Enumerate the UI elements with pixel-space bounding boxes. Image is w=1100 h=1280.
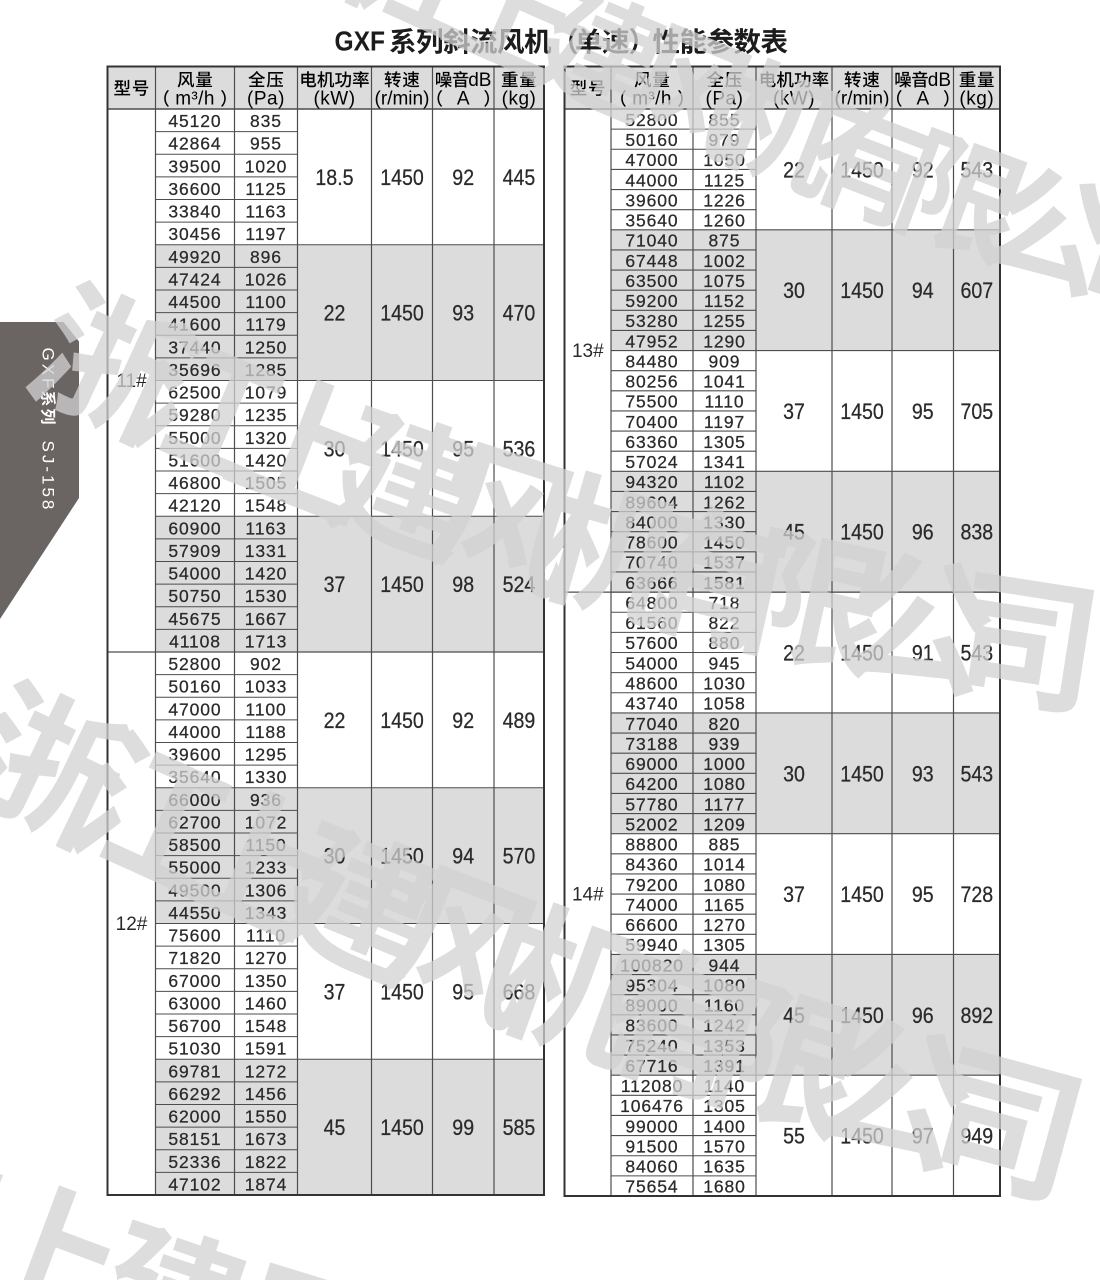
svg-text:955: 955 <box>250 134 282 154</box>
svg-text:1450: 1450 <box>840 520 884 545</box>
svg-text:1550: 1550 <box>245 1107 288 1127</box>
svg-text:98: 98 <box>452 572 474 597</box>
svg-text:44500: 44500 <box>168 292 221 312</box>
svg-text:1305: 1305 <box>703 935 746 955</box>
svg-text:92: 92 <box>452 708 474 733</box>
svg-text:(kW): (kW) <box>313 89 355 110</box>
svg-text:939: 939 <box>709 734 741 754</box>
svg-text:1235: 1235 <box>245 405 288 425</box>
svg-text:(r/min): (r/min) <box>375 89 430 110</box>
svg-text:607: 607 <box>960 278 993 303</box>
svg-text:1673: 1673 <box>245 1129 288 1149</box>
svg-text:96: 96 <box>912 1003 934 1028</box>
svg-text:1320: 1320 <box>245 428 288 448</box>
svg-text:489: 489 <box>503 708 536 733</box>
svg-text:892: 892 <box>960 1003 993 1028</box>
svg-text:58151: 58151 <box>168 1129 221 1149</box>
svg-text:1591: 1591 <box>245 1039 288 1059</box>
svg-text:44000: 44000 <box>168 722 221 742</box>
svg-text:1874: 1874 <box>245 1175 288 1195</box>
svg-text:1548: 1548 <box>245 1016 288 1036</box>
svg-text:1450: 1450 <box>840 761 884 786</box>
svg-text:45675: 45675 <box>168 609 221 629</box>
svg-text:33840: 33840 <box>168 202 221 222</box>
svg-text:902: 902 <box>250 654 282 674</box>
svg-text:1100: 1100 <box>245 292 286 312</box>
svg-text:1270: 1270 <box>245 948 288 968</box>
svg-text:57780: 57780 <box>625 794 678 814</box>
svg-text:64200: 64200 <box>625 774 678 794</box>
svg-text:944: 944 <box>709 955 741 975</box>
svg-text:A: A <box>916 89 929 110</box>
svg-text:52800: 52800 <box>168 654 221 674</box>
svg-text:1125: 1125 <box>704 170 745 190</box>
svg-text:1330: 1330 <box>245 767 288 787</box>
svg-text:37: 37 <box>324 979 346 1004</box>
svg-text:79200: 79200 <box>625 875 678 895</box>
svg-text:93: 93 <box>452 301 474 326</box>
svg-text:1305: 1305 <box>703 432 746 452</box>
svg-text:1400: 1400 <box>703 1116 746 1136</box>
svg-text:(kg): (kg) <box>959 89 994 110</box>
svg-text:1152: 1152 <box>704 291 745 311</box>
svg-text:1000: 1000 <box>703 754 746 774</box>
svg-text:74000: 74000 <box>625 895 678 915</box>
svg-text:48600: 48600 <box>625 674 678 694</box>
svg-text:99000: 99000 <box>625 1116 678 1136</box>
svg-text:1026: 1026 <box>245 270 288 290</box>
svg-text:(kg): (kg) <box>502 89 537 110</box>
svg-text:1255: 1255 <box>703 311 746 331</box>
svg-text:1163: 1163 <box>245 518 286 538</box>
svg-text:SJ-158: SJ-158 <box>38 441 57 513</box>
svg-text:570: 570 <box>503 844 536 869</box>
svg-text:1450: 1450 <box>380 301 424 326</box>
svg-text:71820: 71820 <box>168 948 221 968</box>
svg-text:99: 99 <box>452 1115 474 1140</box>
svg-text:73188: 73188 <box>625 734 678 754</box>
svg-text:909: 909 <box>709 351 741 371</box>
svg-text:1014: 1014 <box>703 855 746 875</box>
svg-text:1080: 1080 <box>703 774 746 794</box>
svg-text:1450: 1450 <box>380 708 424 733</box>
svg-text:95: 95 <box>912 882 934 907</box>
svg-text:54000: 54000 <box>625 653 678 673</box>
svg-text:41108: 41108 <box>169 632 221 652</box>
svg-text:1209: 1209 <box>703 814 746 834</box>
svg-text:47424: 47424 <box>168 270 221 290</box>
svg-text:75654: 75654 <box>625 1177 678 1197</box>
svg-text:1450: 1450 <box>840 399 884 424</box>
svg-text:94: 94 <box>912 278 934 303</box>
svg-text:18.5: 18.5 <box>315 165 353 190</box>
svg-text:1420: 1420 <box>245 564 288 584</box>
svg-text:m³/h: m³/h <box>175 89 215 110</box>
svg-text:69781: 69781 <box>168 1061 221 1081</box>
svg-text:1125: 1125 <box>245 179 286 199</box>
svg-text:1041: 1041 <box>703 372 746 392</box>
svg-text:44000: 44000 <box>625 170 678 190</box>
svg-text:945: 945 <box>709 653 741 673</box>
svg-text:57600: 57600 <box>625 633 678 653</box>
svg-text:71040: 71040 <box>625 231 678 251</box>
svg-text:1002: 1002 <box>703 251 746 271</box>
svg-text:1680: 1680 <box>703 1177 746 1197</box>
svg-text:47102: 47102 <box>168 1175 221 1195</box>
svg-text:1456: 1456 <box>245 1084 288 1104</box>
svg-text:1058: 1058 <box>703 694 746 714</box>
svg-text:543: 543 <box>960 761 993 786</box>
svg-text:94: 94 <box>452 844 474 869</box>
svg-text:875: 875 <box>709 231 741 251</box>
svg-text:94320: 94320 <box>625 472 678 492</box>
svg-text:1450: 1450 <box>380 1115 424 1140</box>
svg-text:1635: 1635 <box>703 1157 746 1177</box>
svg-text:42864: 42864 <box>168 134 221 154</box>
svg-text:45: 45 <box>324 1115 346 1140</box>
svg-text:1295: 1295 <box>245 745 288 765</box>
svg-text:75500: 75500 <box>625 392 678 412</box>
svg-text:30456: 30456 <box>168 224 221 244</box>
svg-text:42120: 42120 <box>168 496 221 516</box>
svg-text:47000: 47000 <box>625 150 678 170</box>
svg-text:14#: 14# <box>572 885 604 906</box>
svg-text:45120: 45120 <box>168 111 221 131</box>
svg-text:1570: 1570 <box>703 1137 746 1157</box>
svg-text:445: 445 <box>503 165 536 190</box>
svg-text:1272: 1272 <box>245 1061 288 1081</box>
svg-text:1110: 1110 <box>705 392 745 412</box>
svg-text:1450: 1450 <box>840 278 884 303</box>
svg-text:77040: 77040 <box>625 714 678 734</box>
svg-text:69000: 69000 <box>625 754 678 774</box>
svg-text:1290: 1290 <box>703 331 746 351</box>
svg-text:1530: 1530 <box>245 586 288 606</box>
svg-text:22: 22 <box>324 708 346 733</box>
svg-text:1080: 1080 <box>703 875 746 895</box>
svg-text:55: 55 <box>783 1124 805 1149</box>
svg-text:62000: 62000 <box>168 1107 221 1127</box>
svg-text:43740: 43740 <box>625 694 678 714</box>
svg-text:95: 95 <box>912 399 934 424</box>
svg-text:728: 728 <box>960 882 993 907</box>
svg-text:37: 37 <box>783 882 805 907</box>
svg-text:35640: 35640 <box>625 211 678 231</box>
svg-text:37: 37 <box>783 399 805 424</box>
svg-text:dB: dB <box>928 70 951 91</box>
svg-text:63500: 63500 <box>625 271 678 291</box>
svg-text:1420: 1420 <box>245 451 288 471</box>
svg-text:1713: 1713 <box>245 632 288 652</box>
svg-text:39500: 39500 <box>168 156 221 176</box>
svg-text:50750: 50750 <box>168 586 221 606</box>
svg-text:1163: 1163 <box>245 202 286 222</box>
svg-text:1197: 1197 <box>704 412 745 432</box>
svg-text:1341: 1341 <box>703 452 746 472</box>
svg-text:1306: 1306 <box>245 880 288 900</box>
svg-text:84060: 84060 <box>625 1157 678 1177</box>
svg-text:896: 896 <box>250 247 282 267</box>
svg-text:51030: 51030 <box>168 1039 221 1059</box>
svg-text:106476: 106476 <box>620 1096 684 1116</box>
svg-text:dB: dB <box>468 70 491 91</box>
svg-text:1226: 1226 <box>703 190 746 210</box>
svg-text:1460: 1460 <box>245 994 288 1014</box>
svg-text:57024: 57024 <box>625 452 678 472</box>
svg-text:47000: 47000 <box>168 699 221 719</box>
svg-text:1250: 1250 <box>245 337 288 357</box>
svg-text:84480: 84480 <box>625 351 678 371</box>
svg-text:1450: 1450 <box>380 572 424 597</box>
svg-text:1450: 1450 <box>380 165 424 190</box>
svg-text:1075: 1075 <box>703 271 746 291</box>
svg-text:1102: 1102 <box>704 472 745 492</box>
svg-text:67000: 67000 <box>168 971 221 991</box>
svg-text:705: 705 <box>960 399 993 424</box>
svg-text:36600: 36600 <box>168 179 221 199</box>
svg-text:885: 885 <box>709 835 741 855</box>
svg-text:470: 470 <box>503 301 536 326</box>
svg-text:30: 30 <box>783 761 805 786</box>
svg-text:50160: 50160 <box>168 677 221 697</box>
svg-text:1020: 1020 <box>245 156 288 176</box>
svg-text:60900: 60900 <box>168 518 221 538</box>
svg-text:50160: 50160 <box>625 130 678 150</box>
svg-text:49920: 49920 <box>168 247 221 267</box>
svg-text:88800: 88800 <box>625 835 678 855</box>
svg-text:1100: 1100 <box>245 699 286 719</box>
svg-text:53280: 53280 <box>625 311 678 331</box>
svg-text:1197: 1197 <box>245 224 286 244</box>
svg-text:37: 37 <box>324 572 346 597</box>
svg-text:47952: 47952 <box>625 331 678 351</box>
svg-text:1822: 1822 <box>245 1152 288 1172</box>
svg-text:1667: 1667 <box>245 609 288 629</box>
svg-text:46800: 46800 <box>168 473 221 493</box>
svg-text:585: 585 <box>503 1115 536 1140</box>
svg-text:(Pa): (Pa) <box>247 89 285 110</box>
svg-text:92: 92 <box>452 165 474 190</box>
svg-text:1165: 1165 <box>704 895 745 915</box>
svg-text:1350: 1350 <box>245 971 288 991</box>
svg-text:66292: 66292 <box>168 1084 221 1104</box>
svg-text:1331: 1331 <box>245 541 288 561</box>
svg-text:56700: 56700 <box>168 1016 221 1036</box>
svg-text:52002: 52002 <box>625 814 678 834</box>
svg-text:63360: 63360 <box>625 432 678 452</box>
svg-text:1450: 1450 <box>840 882 884 907</box>
svg-text:80256: 80256 <box>625 372 678 392</box>
svg-text:1177: 1177 <box>704 794 745 814</box>
svg-text:84360: 84360 <box>625 855 678 875</box>
svg-text:67448: 67448 <box>625 251 678 271</box>
svg-text:70400: 70400 <box>625 412 678 432</box>
svg-text:57909: 57909 <box>168 541 221 561</box>
svg-text:93: 93 <box>912 761 934 786</box>
svg-text:54000: 54000 <box>168 564 221 584</box>
svg-text:1179: 1179 <box>245 315 286 335</box>
svg-text:63000: 63000 <box>168 994 221 1014</box>
svg-text:52336: 52336 <box>168 1152 221 1172</box>
svg-text:1030: 1030 <box>703 674 746 694</box>
svg-text:838: 838 <box>960 520 993 545</box>
svg-text:39600: 39600 <box>625 190 678 210</box>
svg-text:1188: 1188 <box>245 722 286 742</box>
svg-text:66600: 66600 <box>625 915 678 935</box>
svg-text:91500: 91500 <box>625 1137 678 1157</box>
svg-text:12#: 12# <box>116 914 148 935</box>
svg-text:820: 820 <box>709 714 741 734</box>
svg-text:1260: 1260 <box>703 211 746 231</box>
svg-text:13#: 13# <box>572 341 604 362</box>
svg-text:835: 835 <box>250 111 282 131</box>
svg-text:58500: 58500 <box>168 835 221 855</box>
svg-text:1270: 1270 <box>703 915 746 935</box>
svg-text:96: 96 <box>912 520 934 545</box>
svg-text:A: A <box>457 89 470 110</box>
svg-text:30: 30 <box>783 278 805 303</box>
svg-text:1033: 1033 <box>245 677 288 697</box>
svg-text:GXF: GXF <box>335 26 386 57</box>
svg-text:59200: 59200 <box>625 291 678 311</box>
svg-text:75600: 75600 <box>168 926 221 946</box>
svg-text:22: 22 <box>324 301 346 326</box>
